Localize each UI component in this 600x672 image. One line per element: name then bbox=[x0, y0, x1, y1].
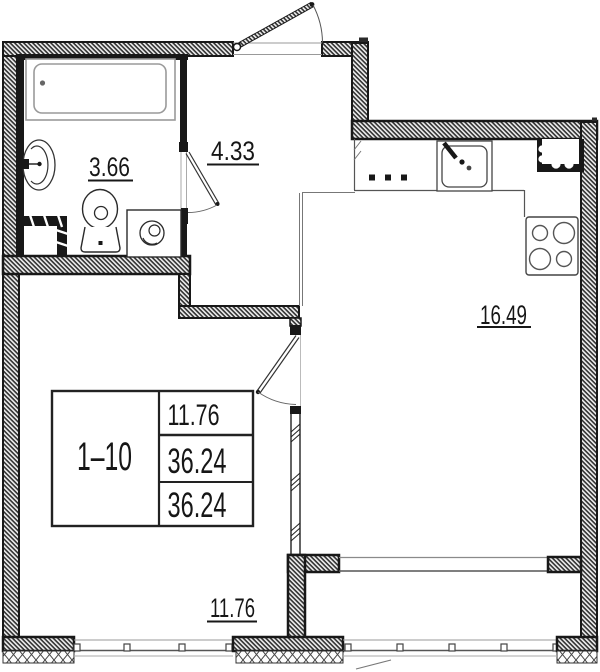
svg-text:11.76: 11.76 bbox=[168, 399, 220, 432]
svg-text:4.33: 4.33 bbox=[211, 136, 255, 166]
svg-text:11.76: 11.76 bbox=[210, 593, 255, 623]
svg-text:3.66: 3.66 bbox=[89, 152, 130, 182]
svg-text:36.24: 36.24 bbox=[168, 486, 227, 525]
svg-text:36.24: 36.24 bbox=[168, 442, 227, 481]
svg-text:16.49: 16.49 bbox=[480, 300, 527, 330]
svg-text:1–10: 1–10 bbox=[77, 435, 132, 479]
